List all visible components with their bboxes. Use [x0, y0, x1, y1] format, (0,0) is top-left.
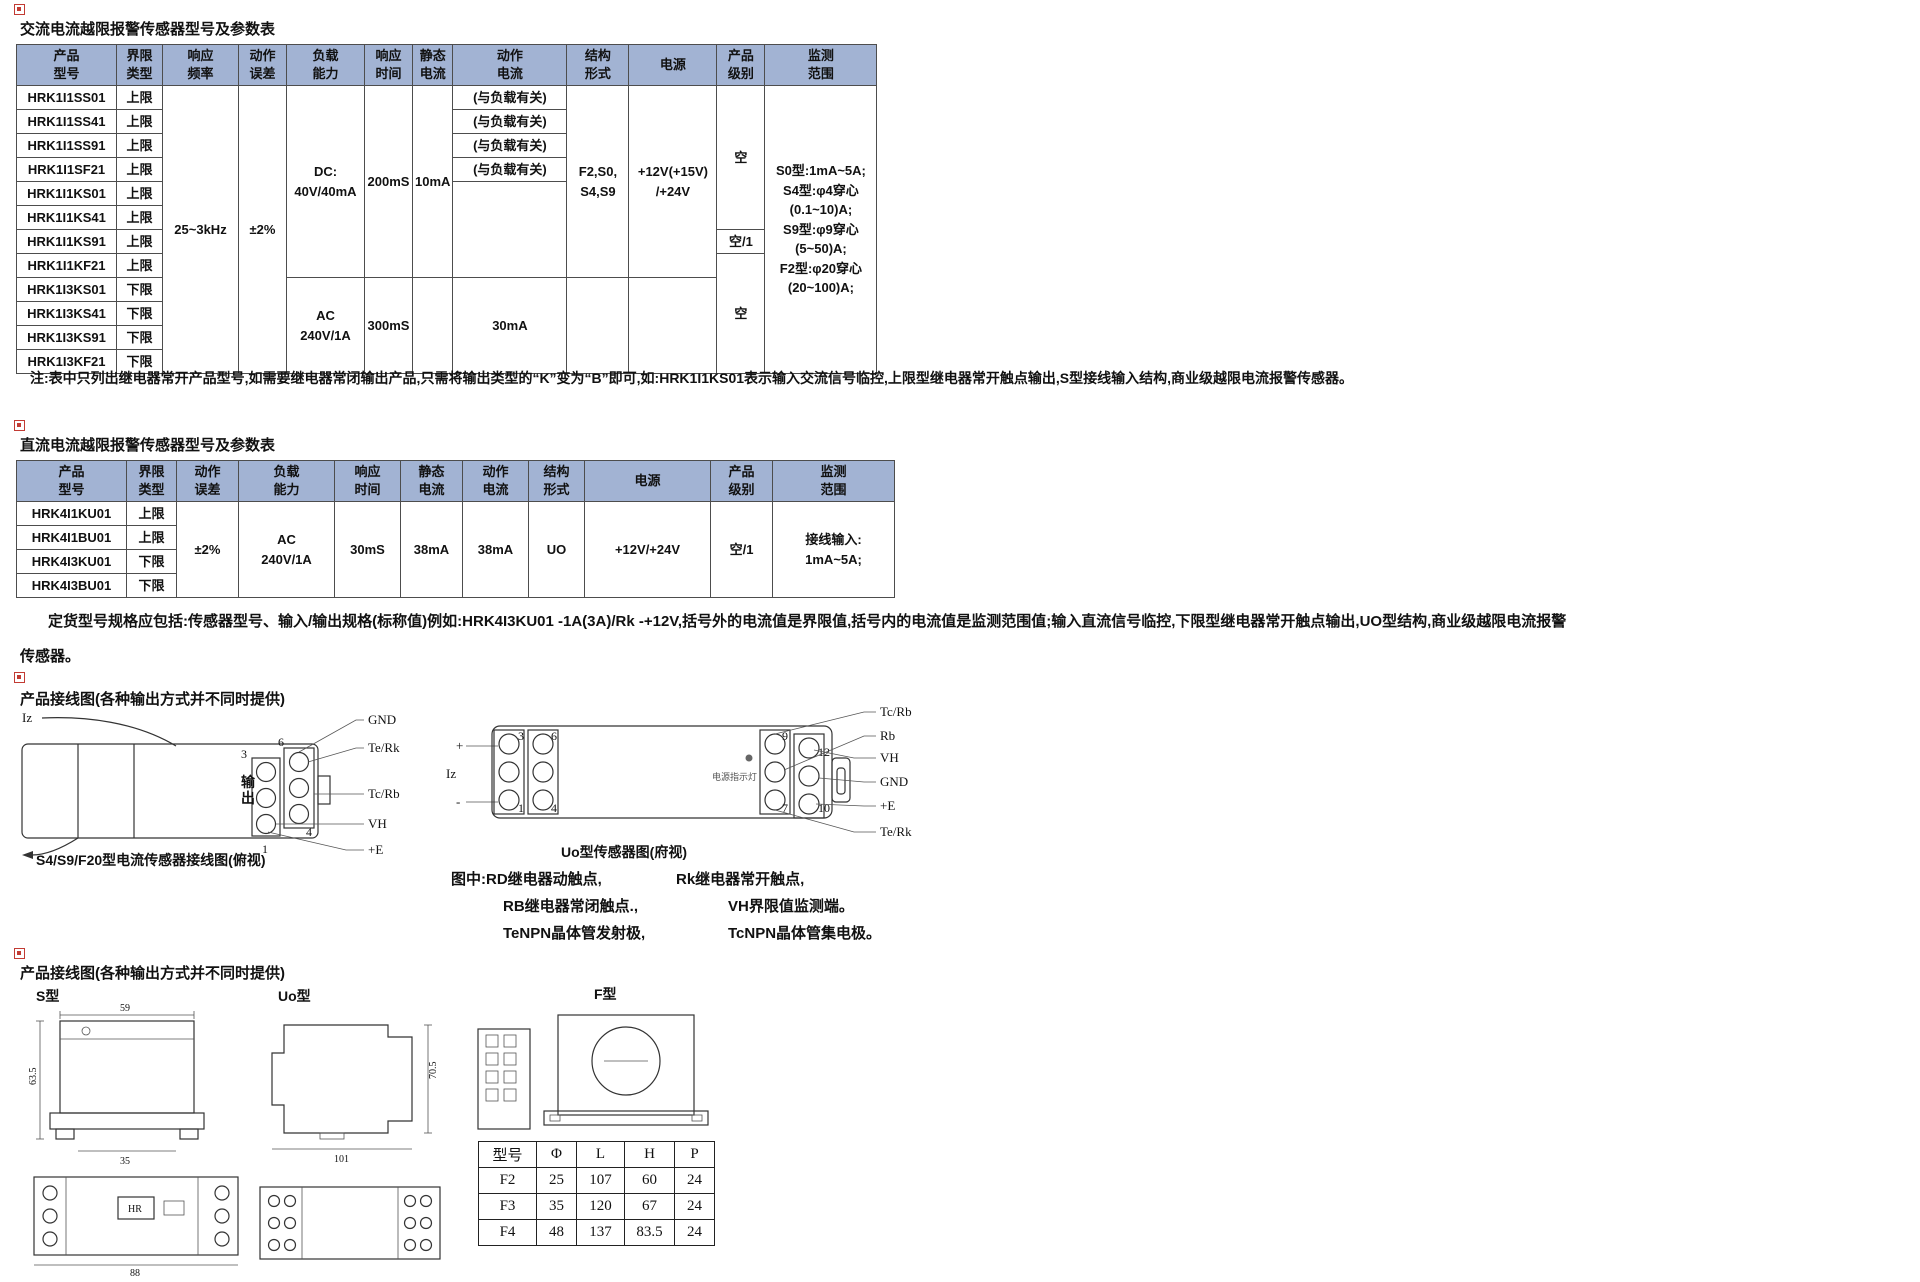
side-profile	[272, 1025, 412, 1133]
missing-image-icon	[14, 672, 25, 683]
table-cell: 下限	[117, 278, 163, 302]
missing-image-icon	[14, 420, 25, 431]
table-cell: HRK1I1KS01	[17, 182, 117, 206]
table-cell: HRK1I1SS01	[17, 86, 117, 110]
table-cell: 107	[577, 1168, 625, 1194]
mounting-hole	[692, 1115, 702, 1121]
table-row: F44813783.524	[479, 1220, 715, 1246]
column-header: L	[577, 1142, 625, 1168]
table-cell: 10mA	[413, 86, 453, 278]
table-cell: ±2%	[177, 502, 239, 598]
column-header: 静态 电流	[401, 461, 463, 502]
header-row: 型号ΦLHP	[479, 1142, 715, 1168]
dim-height-left: 63.5	[28, 1068, 39, 1086]
sensor-body	[492, 726, 832, 818]
column-header: 监测 范围	[765, 45, 877, 86]
legend-text: TeNPN晶体管发射极,	[503, 920, 728, 947]
terminal	[405, 1240, 416, 1251]
pin-label-te-rk: Te/Rk	[880, 824, 912, 839]
power-led-label: 电源指示灯	[712, 771, 757, 782]
pin-label-gnd: GND	[880, 774, 908, 789]
terminal-block	[284, 748, 314, 828]
column-header: 静态 电流	[413, 45, 453, 86]
terminal	[269, 1240, 280, 1251]
table-cell: 上限	[117, 158, 163, 182]
legend-text: TcNPN晶体管集电极。	[728, 925, 881, 942]
column-header: 产品 型号	[17, 461, 127, 502]
column-header: 电源	[629, 45, 717, 86]
table-cell	[413, 278, 453, 374]
spec-table: 产品 型号界限 类型响应 频率动作 误差负载 能力响应 时间静态 电流动作 电流…	[16, 44, 877, 374]
table-cell: AC 240V/1A	[239, 502, 335, 598]
column-header: 结构 形式	[567, 45, 629, 86]
table-cell: 下限	[117, 302, 163, 326]
pin-label-tc-rb: Tc/Rb	[368, 786, 400, 801]
column-header: 产品 级别	[711, 461, 773, 502]
table-cell: 空	[717, 254, 765, 374]
terminal	[257, 815, 276, 834]
terminal	[533, 762, 553, 782]
table-cell: +12V(+15V) /+24V	[629, 86, 717, 278]
table-cell: AC 240V/1A	[287, 278, 365, 374]
table-cell: 35	[537, 1194, 577, 1220]
column-header: 界限 类型	[117, 45, 163, 86]
legend-line: RB继电器常闭触点.,VH界限值监测端。	[451, 893, 881, 920]
column-header: 界限 类型	[127, 461, 177, 502]
terminal	[405, 1196, 416, 1207]
terminal	[799, 766, 819, 786]
diagram-legend: 图中:RD继电器动触点,Rk继电器常开触点, RB继电器常闭触点.,VH界限值监…	[451, 866, 881, 947]
table-cell: 下限	[117, 326, 163, 350]
table-cell: F2,S0, S4,S9	[567, 86, 629, 278]
spec-table: 型号ΦLHPF2251076024F3351206724F44813783.52…	[478, 1141, 715, 1246]
column-header: 响应 频率	[163, 45, 239, 86]
terminal	[43, 1232, 57, 1246]
mounting-foot	[180, 1129, 198, 1139]
legend-text: VH界限值监测端。	[728, 898, 854, 915]
uo-type-diagram: + Iz - 3 6 1 4 电源指示灯	[444, 700, 934, 842]
table-cell: HRK1I1SS41	[17, 110, 117, 134]
table-cell: 25~3kHz	[163, 86, 239, 374]
mounting-base	[544, 1111, 708, 1125]
table-row: HRK1I1SS01上限25~3kHz±2%DC: 40V/40mA200mS1…	[17, 86, 877, 110]
table-cell: 137	[577, 1220, 625, 1246]
table-cell: 接线输入: 1mA~5A;	[773, 502, 895, 598]
column-header: 型号	[479, 1142, 537, 1168]
column-header: 负载 能力	[239, 461, 335, 502]
table-cell: 30mS	[335, 502, 401, 598]
terminal-number: 3	[241, 747, 247, 761]
table-cell	[567, 278, 629, 374]
column-header: 响应 时间	[335, 461, 401, 502]
table-cell: (与负载有关)	[453, 134, 567, 158]
table-cell: HRK1I1KF21	[17, 254, 117, 278]
module-label: HR	[128, 1204, 142, 1215]
polarity-plus: +	[456, 738, 463, 753]
table-cell: 83.5	[625, 1220, 675, 1246]
front-view-body	[60, 1021, 194, 1113]
datasheet-page: 交流电流越限报警传感器型号及参数表 产品 型号界限 类型响应 频率动作 误差负载…	[0, 0, 1920, 1282]
legend-line: TeNPN晶体管发射极,TcNPN晶体管集电极。	[451, 920, 881, 947]
table-cell: 24	[675, 1220, 715, 1246]
table-cell: 38mA	[463, 502, 529, 598]
table-row: HRK4I1KU01上限±2%AC 240V/1A30mS38mA38mAUO+…	[17, 502, 895, 526]
output-vertical-label: 输出	[240, 774, 256, 806]
table-cell: HRK1I1KS41	[17, 206, 117, 230]
table-cell: HRK1I3KS41	[17, 302, 117, 326]
uo-diagram-caption: Uo型传感器图(府视)	[561, 842, 687, 862]
ordering-note-line2: 传感器。	[20, 645, 80, 666]
terminal-number: 10	[818, 801, 830, 815]
f-dimension-table: 型号ΦLHPF2251076024F3351206724F44813783.52…	[478, 1141, 715, 1246]
table-cell: S0型:1mA~5A; S4型:φ4穿心 (0.1~10)A; S9型:φ9穿心…	[765, 86, 877, 374]
column-header: 动作 误差	[177, 461, 239, 502]
top-view-body	[34, 1177, 238, 1255]
s-type-wiring-diagram: Iz 3 6 1 4 GND Te	[16, 706, 426, 860]
uo-type-outline-drawing: 70.5 101	[248, 1001, 458, 1277]
table-cell: 120	[577, 1194, 625, 1220]
dim-length-bottom: 88	[130, 1268, 140, 1279]
column-header: 动作 电流	[453, 45, 567, 86]
terminal	[290, 805, 309, 824]
input-current-label: Iz	[446, 766, 456, 781]
table-cell	[453, 182, 567, 278]
terminal-number: 3	[518, 729, 524, 743]
dc-table-title: 直流电流越限报警传感器型号及参数表	[20, 434, 275, 455]
table-cell: (与负载有关)	[453, 86, 567, 110]
terminal	[421, 1196, 432, 1207]
header-row: 产品 型号界限 类型动作 误差负载 能力响应 时间静态 电流动作 电流结构 形式…	[17, 461, 895, 502]
table-cell: HRK4I1KU01	[17, 502, 127, 526]
column-header: P	[675, 1142, 715, 1168]
table-cell	[629, 278, 717, 374]
terminal	[290, 753, 309, 772]
column-header: Φ	[537, 1142, 577, 1168]
table-row: F3351206724	[479, 1194, 715, 1220]
table-cell: HRK1I3KS01	[17, 278, 117, 302]
connector-tab	[318, 776, 330, 804]
terminal	[290, 779, 309, 798]
table-cell: 空	[717, 86, 765, 230]
missing-image-dot	[17, 423, 21, 427]
legend-text: RB继电器常闭触点.,	[503, 893, 728, 920]
table-cell: F3	[479, 1194, 537, 1220]
table-cell: ±2%	[239, 86, 287, 374]
terminal	[215, 1209, 229, 1223]
terminal-number: 1	[518, 801, 524, 815]
pin-label-plus-e: +E	[368, 842, 383, 857]
ac-params-table: 产品 型号界限 类型响应 频率动作 误差负载 能力响应 时间静态 电流动作 电流…	[16, 44, 877, 374]
missing-image-dot	[17, 675, 21, 679]
table-cell: HRK4I1BU01	[17, 526, 127, 550]
table-cell: 30mA	[453, 278, 567, 374]
column-header: 产品 型号	[17, 45, 117, 86]
table-cell: 60	[625, 1168, 675, 1194]
adjust-hole	[82, 1027, 90, 1035]
mounting-hole	[550, 1115, 560, 1121]
table-cell: HRK1I1SS91	[17, 134, 117, 158]
terminal	[269, 1196, 280, 1207]
column-header: H	[625, 1142, 675, 1168]
dim-height-right: 70.5	[428, 1062, 439, 1080]
pin-label-vh: VH	[368, 816, 387, 831]
table-cell: 上限	[117, 134, 163, 158]
polarity-minus: -	[456, 794, 460, 809]
pin-label-vh: VH	[880, 750, 899, 765]
terminal	[533, 790, 553, 810]
f-type-outline-drawing	[474, 1001, 714, 1133]
table-cell: (与负载有关)	[453, 110, 567, 134]
dim-width-top: 59	[120, 1003, 130, 1014]
column-header: 电源	[585, 461, 711, 502]
missing-image-icon	[14, 948, 25, 959]
top-view-body	[260, 1187, 440, 1259]
terminal	[799, 738, 819, 758]
table-cell: 上限	[117, 86, 163, 110]
table-cell: 上限	[117, 182, 163, 206]
terminal	[285, 1218, 296, 1229]
table-cell: 25	[537, 1168, 577, 1194]
table-cell: 24	[675, 1194, 715, 1220]
terminal-number: 4	[551, 801, 557, 815]
table-cell: HRK1I1SF21	[17, 158, 117, 182]
terminal	[257, 763, 276, 782]
terminal	[257, 789, 276, 808]
table-cell: F4	[479, 1220, 537, 1246]
terminal	[421, 1218, 432, 1229]
dc-params-table: 产品 型号界限 类型动作 误差负载 能力响应 时间静态 电流动作 电流结构 形式…	[16, 460, 895, 598]
table-cell: 上限	[117, 206, 163, 230]
power-led	[746, 755, 753, 762]
terminal-number: 6	[278, 735, 284, 749]
s-type-outline-drawing: 59 63.5 35 HR 8	[26, 1001, 246, 1277]
dim-length-bottom: 101	[334, 1154, 349, 1165]
table-cell: UO	[529, 502, 585, 598]
table-cell: 24	[675, 1168, 715, 1194]
spec-table: 产品 型号界限 类型动作 误差负载 能力响应 时间静态 电流动作 电流结构 形式…	[16, 460, 895, 598]
table-cell: +12V/+24V	[585, 502, 711, 598]
header-row: 产品 型号界限 类型响应 频率动作 误差负载 能力响应 时间静态 电流动作 电流…	[17, 45, 877, 86]
table-cell: 上限	[127, 502, 177, 526]
input-wire	[42, 718, 176, 746]
terminal	[43, 1209, 57, 1223]
table-cell: HRK1I1KS91	[17, 230, 117, 254]
column-header: 结构 形式	[529, 461, 585, 502]
arrowhead	[22, 851, 33, 859]
terminal	[533, 734, 553, 754]
legend-line: 图中:RD继电器动触点,Rk继电器常开触点,	[451, 866, 881, 893]
ac-table-title: 交流电流越限报警传感器型号及参数表	[20, 18, 275, 39]
column-header: 监测 范围	[773, 461, 895, 502]
terminal	[499, 790, 519, 810]
table-cell: 200mS	[365, 86, 413, 278]
terminal	[215, 1186, 229, 1200]
missing-image-icon	[14, 4, 25, 15]
table-cell: 下限	[127, 550, 177, 574]
input-current-label: Iz	[22, 710, 32, 725]
terminal	[405, 1218, 416, 1229]
s-diagram-caption: S4/S9/F20型电流传感器接线图(俯视)	[36, 850, 265, 870]
table-cell: 空/1	[711, 502, 773, 598]
mounting-foot	[56, 1129, 74, 1139]
pin-label-plus-e: +E	[880, 798, 895, 813]
column-header: 响应 时间	[365, 45, 413, 86]
table-cell: 空/1	[717, 230, 765, 254]
wiring-diagrams: Iz 3 6 1 4 GND Te	[16, 700, 956, 960]
terminal	[421, 1240, 432, 1251]
pin-label-rb: Rb	[880, 728, 895, 743]
din-rail-base	[50, 1113, 204, 1129]
table-cell: 48	[537, 1220, 577, 1246]
terminal	[499, 734, 519, 754]
column-header: 负载 能力	[287, 45, 365, 86]
table-cell: HRK1I3KS91	[17, 326, 117, 350]
table-cell: 下限	[127, 574, 177, 598]
din-clip	[320, 1133, 344, 1139]
table-cell: 上限	[117, 254, 163, 278]
table-cell: HRK4I3BU01	[17, 574, 127, 598]
terminal	[215, 1232, 229, 1246]
table-cell: 上限	[117, 230, 163, 254]
terminal-number: 6	[551, 729, 557, 743]
table-cell: F2	[479, 1168, 537, 1194]
terminal	[43, 1186, 57, 1200]
table-cell: 上限	[127, 526, 177, 550]
column-header: 动作 电流	[463, 461, 529, 502]
ac-table-note: 注:表中只列出继电器常开产品型号,如需要继电器常闭输出产品,只需将输出类型的“K…	[30, 368, 1353, 388]
terminal	[285, 1240, 296, 1251]
terminal-number: 4	[306, 825, 312, 839]
table-cell: HRK4I3KU01	[17, 550, 127, 574]
pin-label-te-rk: Te/Rk	[368, 740, 400, 755]
missing-image-dot	[17, 951, 21, 955]
terminal	[285, 1196, 296, 1207]
table-cell: DC: 40V/40mA	[287, 86, 365, 278]
table-cell: 300mS	[365, 278, 413, 374]
dim-bottom: 35	[120, 1156, 130, 1167]
pin-label-gnd: GND	[368, 712, 396, 727]
column-header: 动作 误差	[239, 45, 287, 86]
legend-text: Rk继电器常开触点,	[676, 871, 804, 888]
table-cell: 38mA	[401, 502, 463, 598]
terminal	[499, 762, 519, 782]
front-view-body	[558, 1015, 694, 1115]
ordering-note-line1: 定货型号规格应包括:传感器型号、输入/输出规格(标称值)例如:HRK4I3KU0…	[48, 610, 1566, 631]
missing-image-dot	[17, 7, 21, 11]
outline-drawings: S型 Uo型 F型 59 63.5 35	[16, 975, 776, 1282]
table-cell: 67	[625, 1194, 675, 1220]
terminal	[765, 762, 785, 782]
table-cell: 上限	[117, 110, 163, 134]
pin-label-tc-rb: Tc/Rb	[880, 704, 912, 719]
terminal	[269, 1218, 280, 1229]
table-row: F2251076024	[479, 1168, 715, 1194]
column-header: 产品 级别	[717, 45, 765, 86]
legend-text: 图中:RD继电器动触点,	[451, 866, 676, 893]
table-cell: (与负载有关)	[453, 158, 567, 182]
